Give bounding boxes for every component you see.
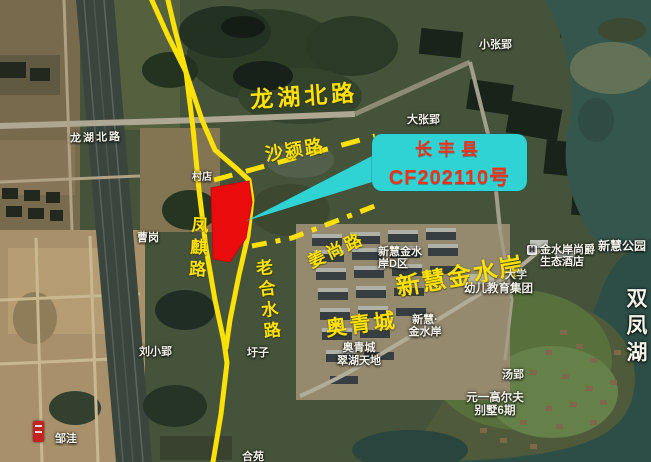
- parcel-callout: 长丰县 CF202110号: [372, 134, 527, 191]
- map-art-layer: [0, 0, 651, 462]
- callout-parcel-number: CF202110号: [389, 161, 510, 190]
- red-building-marker: [33, 421, 44, 442]
- callout-county-name: 长丰县: [415, 135, 484, 160]
- satellite-map-canvas: 长丰县 CF202110号 龙湖北路 沙颍路 凤麒路 老合水路 姜尚路 奥青城 …: [0, 0, 651, 462]
